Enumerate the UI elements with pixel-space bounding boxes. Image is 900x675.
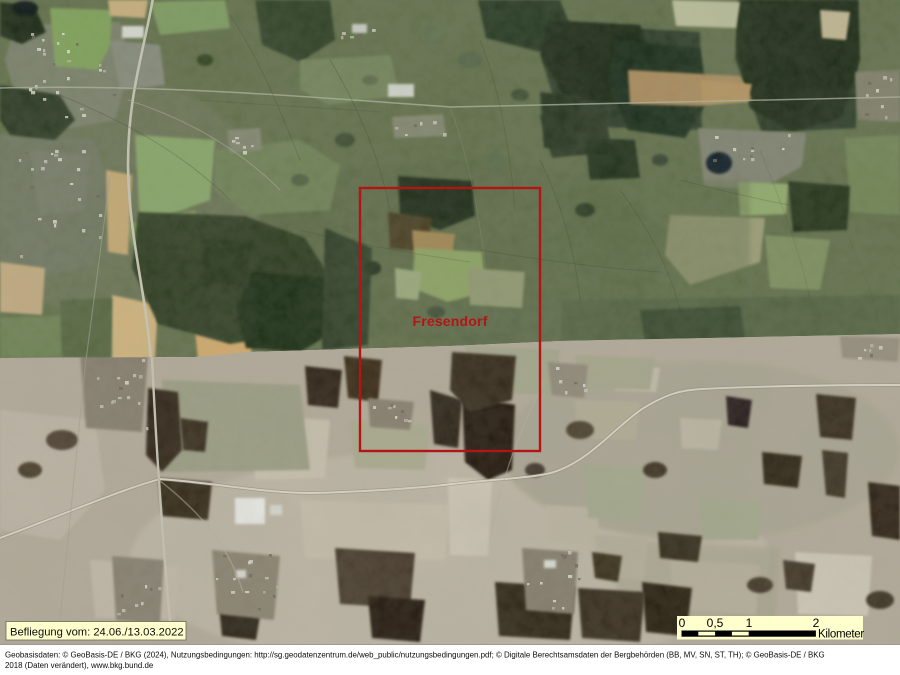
svg-text:0,5: 0,5 xyxy=(707,616,724,630)
svg-text:1: 1 xyxy=(746,616,753,630)
svg-text:0: 0 xyxy=(679,616,686,630)
svg-text:Kilometer: Kilometer xyxy=(818,629,864,641)
svg-text:2018 (Daten verändert), www.bk: 2018 (Daten verändert), www.bkg.bund.de xyxy=(5,661,154,670)
svg-text:Fresendorf: Fresendorf xyxy=(412,313,487,329)
svg-text:Befliegung vom: 24.06./13.03.2: Befliegung vom: 24.06./13.03.2022 xyxy=(10,627,184,639)
svg-text:Geobasisdaten: © GeoBasis-DE /: Geobasisdaten: © GeoBasis-DE / BKG (2024… xyxy=(5,651,825,660)
